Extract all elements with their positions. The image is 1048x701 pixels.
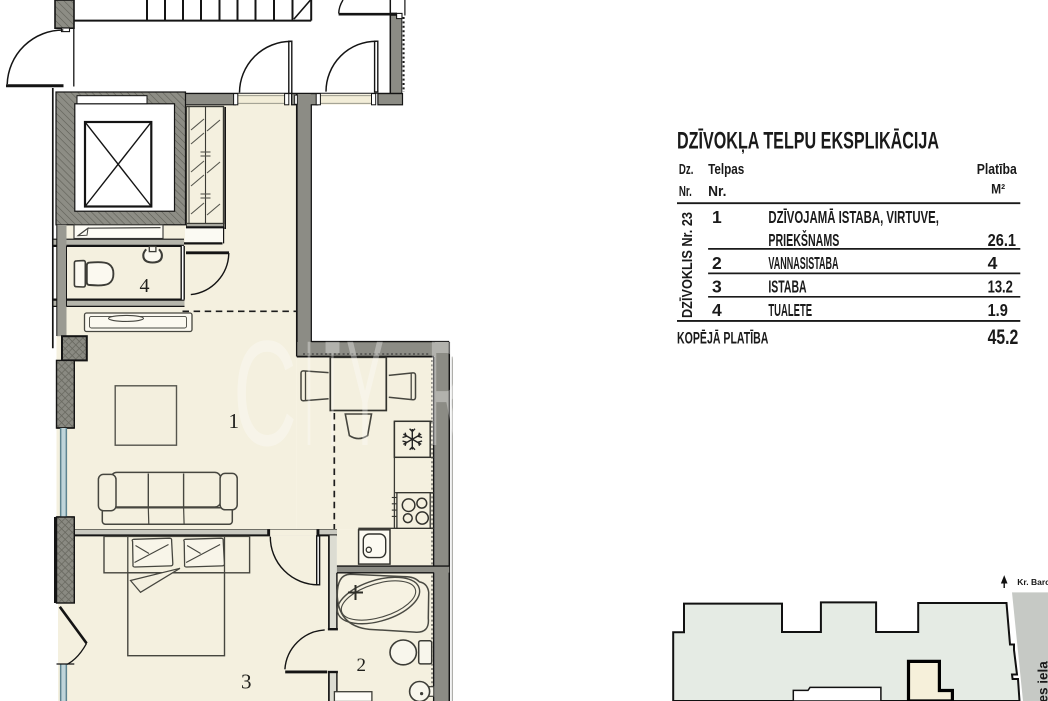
svg-text:Nr.: Nr. — [708, 183, 726, 200]
svg-text:TUALETE: TUALETE — [768, 300, 812, 320]
svg-text:C: C — [233, 309, 297, 477]
svg-text:ISTABA: ISTABA — [768, 277, 806, 297]
svg-text:VANNASISTABA: VANNASISTABA — [768, 253, 838, 273]
svg-text:2: 2 — [712, 253, 722, 273]
svg-text:13.2: 13.2 — [988, 277, 1013, 297]
svg-text:PRIEKŠNAMS: PRIEKŠNAMS — [768, 229, 839, 250]
svg-text:DZĪVOJAMĀ ISTABA, VIRTUVE,: DZĪVOJAMĀ ISTABA, VIRTUVE, — [768, 207, 939, 227]
svg-text:4: 4 — [988, 253, 998, 273]
svg-text:KOPĒJĀ PLATĪBA: KOPĒJĀ PLATĪBA — [677, 328, 768, 347]
svg-text:Telpas: Telpas — [708, 161, 744, 178]
svg-text:1: 1 — [712, 207, 722, 227]
svg-text:Kr. Barona iela: Kr. Barona iela — [1017, 577, 1048, 587]
svg-text:2: 2 — [357, 655, 367, 676]
svg-text:Nr.: Nr. — [679, 183, 692, 200]
svg-text:Platība: Platība — [977, 161, 1018, 178]
svg-text:T: T — [325, 309, 340, 477]
svg-text:I: I — [305, 309, 313, 477]
svg-text:4: 4 — [140, 275, 150, 297]
svg-text:Dz.: Dz. — [679, 161, 694, 178]
svg-text:3: 3 — [241, 670, 252, 694]
svg-text:DZĪVOKĻA TELPU EKSPLIKĀCIJA: DZĪVOKĻA TELPU EKSPLIKĀCIJA — [677, 127, 939, 154]
svg-text:26.1: 26.1 — [988, 230, 1017, 250]
svg-text:1.9: 1.9 — [988, 300, 1008, 320]
svg-text:3: 3 — [712, 277, 722, 297]
svg-text:Ģertrūdes iela: Ģertrūdes iela — [1036, 661, 1048, 701]
svg-text:R: R — [428, 309, 462, 477]
svg-text:Y: Y — [346, 309, 384, 477]
svg-text:4: 4 — [712, 300, 722, 320]
svg-text:DZĪVOKLIS Nr. 23: DZĪVOKLIS Nr. 23 — [679, 212, 696, 318]
svg-text:45.2: 45.2 — [988, 326, 1019, 349]
svg-text:M²: M² — [991, 180, 1005, 196]
